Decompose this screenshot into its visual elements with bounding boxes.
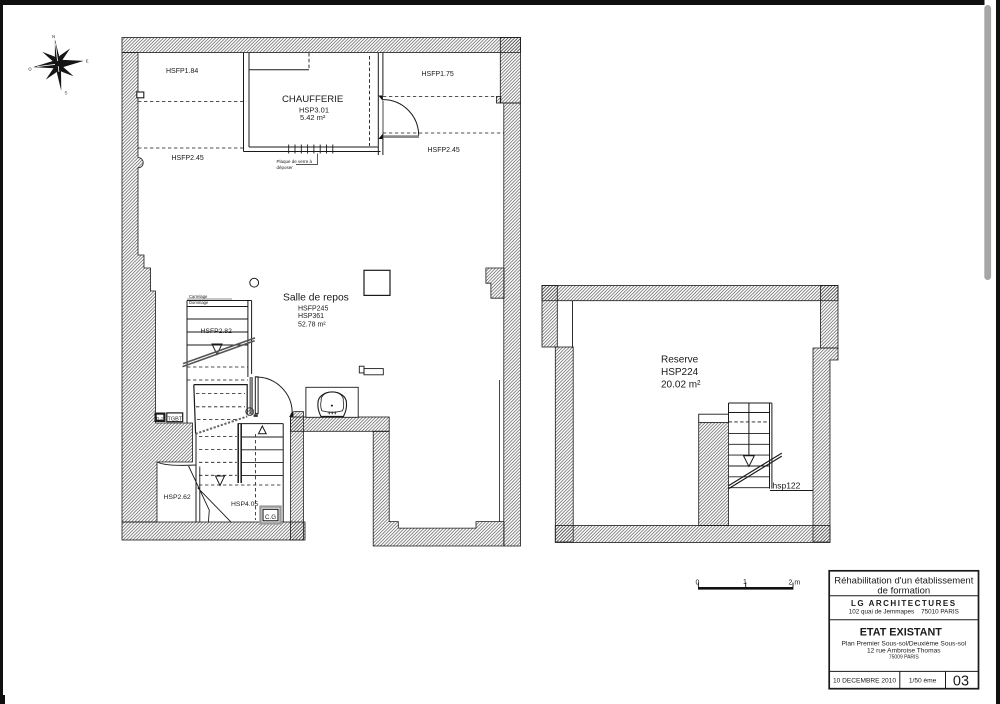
svg-text:déposer: déposer [277,165,294,170]
svg-text:Salle de repos: Salle de repos [283,293,349,304]
svg-text:HSFP2.45: HSFP2.45 [428,147,460,154]
svg-text:Reserve: Reserve [661,355,699,366]
svg-text:TGBT: TGBT [168,416,183,422]
svg-text:HSP224: HSP224 [661,367,699,378]
svg-text:HSFP1.75: HSFP1.75 [422,71,454,78]
svg-text:2 m: 2 m [789,580,801,587]
svg-text:CHAUFFERIE: CHAUFFERIE [282,94,343,105]
svg-text:N: N [52,34,56,39]
svg-text:52.78 m²: 52.78 m² [298,322,326,329]
svg-text:HSFP2.82: HSFP2.82 [201,328,233,335]
svg-text:1: 1 [743,579,747,586]
svg-text:hsp122: hsp122 [773,481,801,491]
svg-text:HSP4.05: HSP4.05 [231,501,258,508]
svg-text:C.G: C.G [265,514,276,521]
svg-text:0: 0 [696,580,700,587]
svg-text:5.42 m²: 5.42 m² [300,113,326,122]
svg-text:20.02 m²: 20.02 m² [661,380,701,391]
svg-text:10 DECEMBRE 2010: 10 DECEMBRE 2010 [833,678,896,685]
svg-text:HSFP1.84: HSFP1.84 [166,68,198,75]
svg-text:75009 PARIS: 75009 PARIS [889,655,920,661]
svg-text:Carrelage: Carrelage [189,294,208,299]
svg-text:HSP2.62: HSP2.62 [164,494,191,501]
svg-text:12 rue Ambroise Thomas: 12 rue Ambroise Thomas [867,648,941,655]
svg-text:Plaque de verre à: Plaque de verre à [277,159,313,164]
svg-text:ETAT EXISTANT: ETAT EXISTANT [860,627,943,639]
svg-text:HSFP2.45: HSFP2.45 [172,155,204,162]
svg-text:D.J: D.J [156,416,162,421]
svg-text:Dommage: Dommage [189,300,209,305]
svg-text:1/50 ème: 1/50 ème [909,678,937,685]
svg-text:LG ARCHITECTURES: LG ARCHITECTURES [851,599,956,608]
svg-text:Plan Premier Sous-sol/Deuxième: Plan Premier Sous-sol/Deuxième Sous-sol [841,641,966,648]
svg-text:de formation: de formation [877,586,930,597]
svg-text:HSP361: HSP361 [298,313,324,320]
svg-text:HSFP245: HSFP245 [298,306,328,313]
svg-text:03: 03 [953,674,969,690]
svg-text:102 quai de Jemmapes 75010: 102 quai de Jemmapes 75010 PARIS [849,609,959,616]
